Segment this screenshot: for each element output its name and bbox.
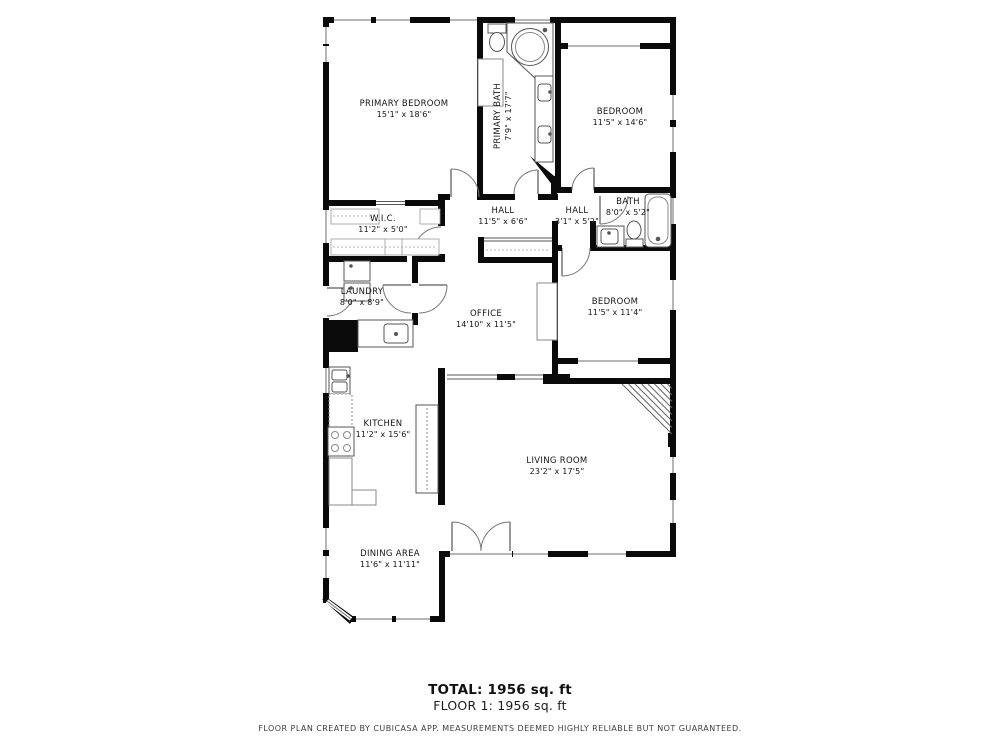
floor-plan-drawing — [0, 0, 1000, 750]
toilet-primary — [488, 24, 506, 52]
kitchen-island — [416, 405, 438, 493]
door-primary-bath — [514, 170, 538, 194]
door-primary-bedroom — [451, 169, 479, 197]
area-summary: TOTAL: 1956 sq. ft FLOOR 1: 1956 sq. ft — [0, 683, 1000, 713]
french-doors — [450, 522, 512, 557]
disclaimer-text: FLOOR PLAN CREATED BY CUBICASA APP. MEAS… — [0, 724, 1000, 733]
washer-dryer — [344, 261, 370, 301]
doors — [323, 64, 628, 557]
toilet-bath2 — [626, 221, 643, 247]
sliding-openings — [376, 200, 552, 379]
stairs-hatch — [622, 384, 672, 434]
door-bedroom-mid — [562, 248, 590, 276]
utility-sink — [358, 320, 413, 347]
bathtub — [645, 194, 671, 247]
total-area-text: TOTAL: 1956 sq. ft — [0, 683, 1000, 698]
bay-window — [327, 601, 351, 619]
vanity-bath2 — [597, 226, 624, 247]
fixtures — [328, 23, 671, 505]
vanity-primary — [535, 76, 553, 162]
shower — [478, 59, 503, 106]
stove — [328, 427, 354, 456]
kitchen-sink — [329, 367, 350, 394]
corner-tub — [507, 23, 553, 80]
floor1-area-text: FLOOR 1: 1956 sq. ft — [0, 698, 1000, 713]
door-bath — [600, 196, 628, 224]
floor-plan-page: PRIMARY BEDROOM 15'1" x 18'6" PRIMARY BA… — [0, 0, 1000, 750]
door-laundry — [383, 285, 411, 313]
door-bedroom-top — [572, 168, 594, 190]
door-hallway — [419, 285, 447, 313]
office-wardrobe — [537, 283, 557, 340]
